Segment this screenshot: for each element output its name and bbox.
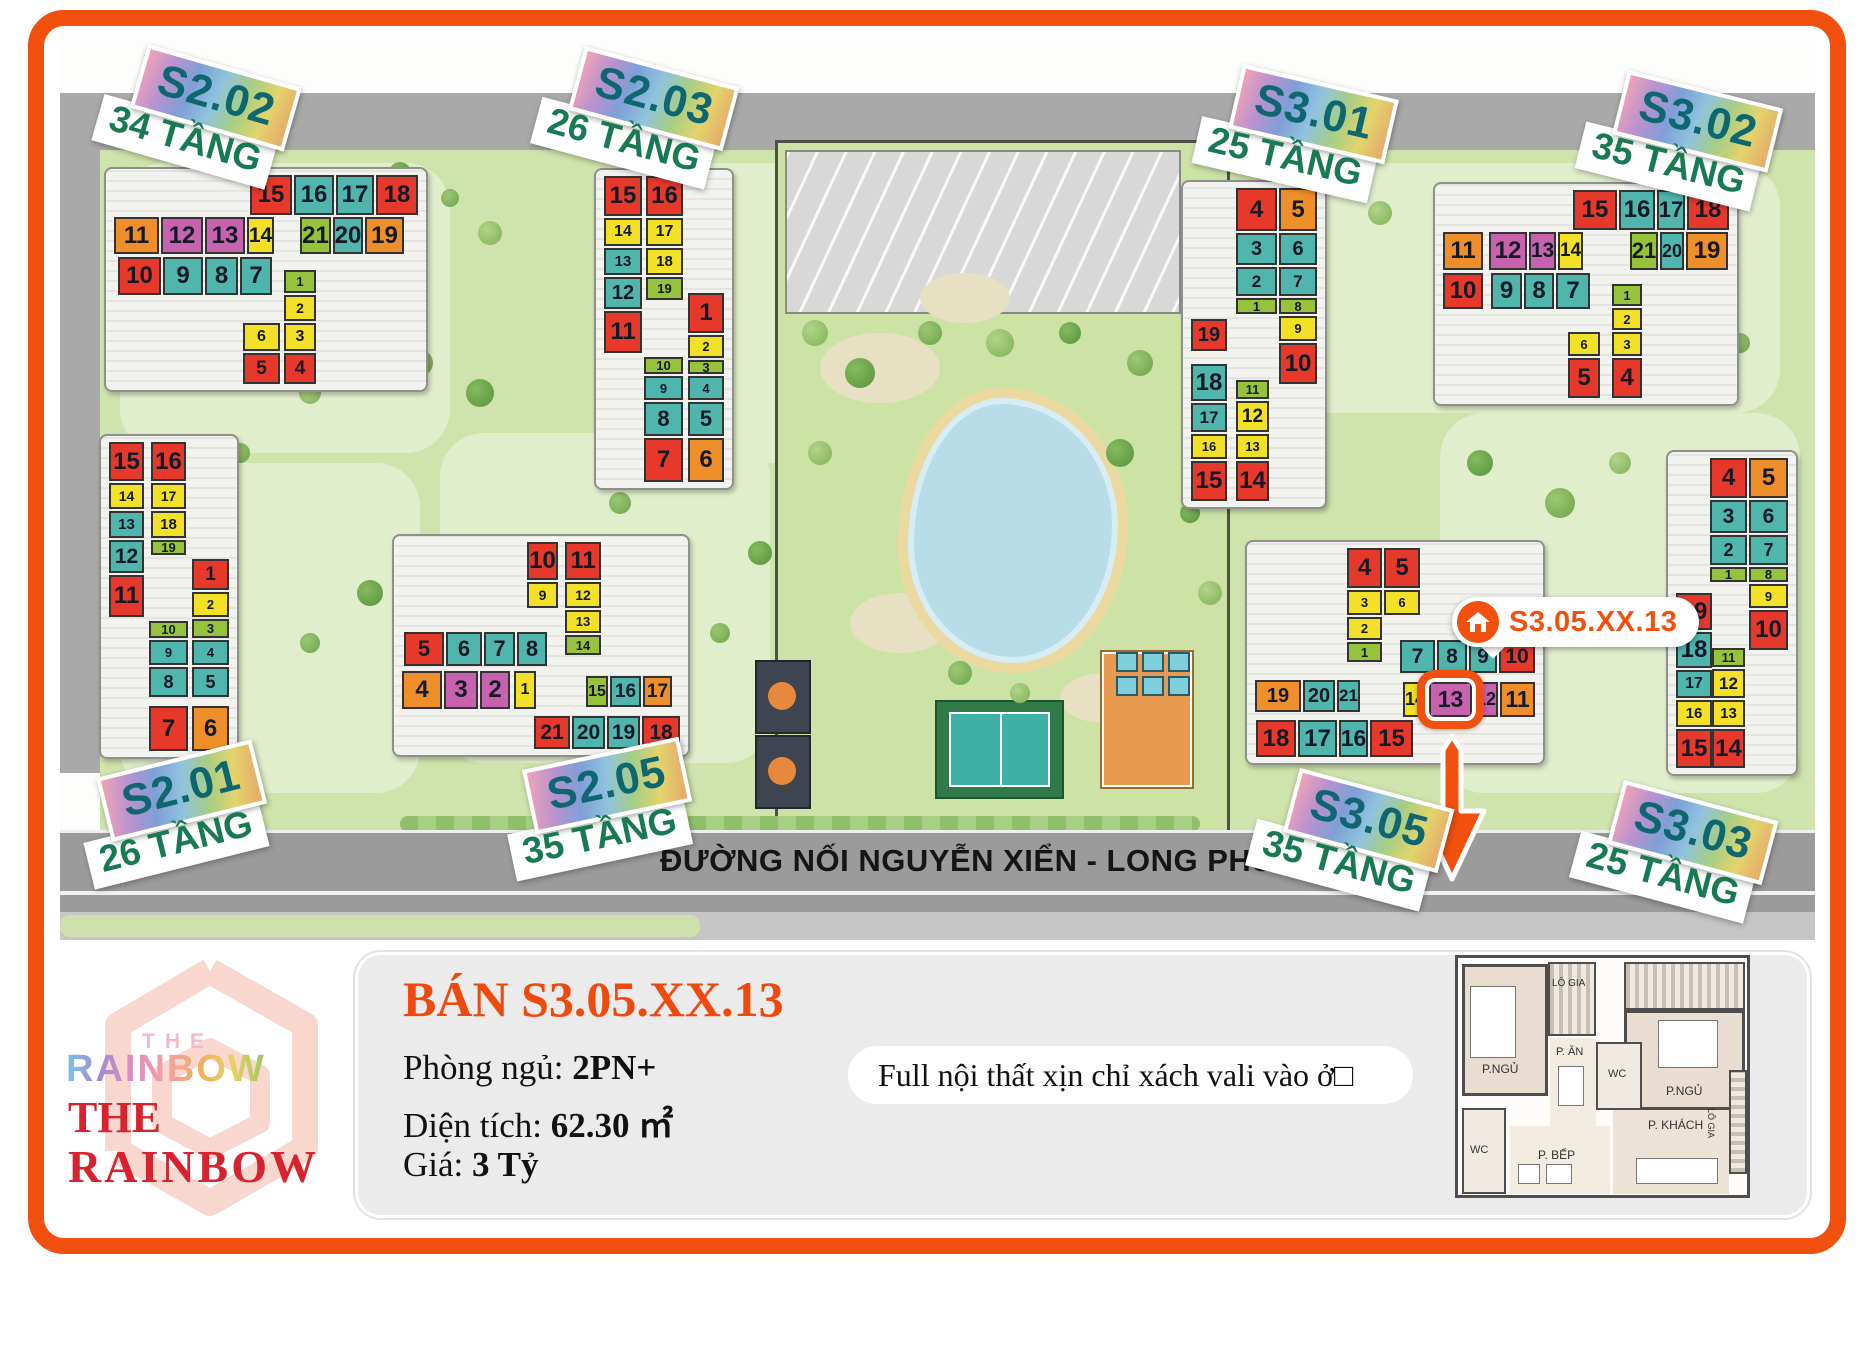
decoration xyxy=(949,712,1050,787)
unit-S2.02-10[interactable]: 10 xyxy=(118,257,161,295)
logo-rainbow-serif-text: RAINBOW xyxy=(68,1140,319,1193)
unit-S2.01-11[interactable]: 11 xyxy=(109,575,144,617)
decoration xyxy=(1168,676,1190,696)
unit-S3.01-1[interactable]: 1 xyxy=(1236,298,1277,314)
unit-S2.03-6[interactable]: 6 xyxy=(688,438,724,482)
field-label: Giá: xyxy=(403,1145,472,1184)
unit-S2.05-9[interactable]: 9 xyxy=(527,582,558,608)
unit-S2.03-12[interactable]: 12 xyxy=(604,277,642,309)
unit-S3.01-15[interactable]: 15 xyxy=(1191,461,1227,501)
unit-S2.02-13[interactable]: 13 xyxy=(205,217,245,254)
room-label: P. ĂN xyxy=(1556,1046,1583,1058)
unit-S3.03-13[interactable]: 13 xyxy=(1712,700,1745,727)
unit-S2.03-10[interactable]: 10 xyxy=(644,357,683,374)
unit-S3.02-21[interactable]: 21 xyxy=(1630,232,1658,270)
unit-S2.03-5[interactable]: 5 xyxy=(688,402,724,436)
unit-S3.03-1[interactable]: 1 xyxy=(1710,567,1747,582)
decoration xyxy=(1467,450,1493,476)
decoration xyxy=(300,633,320,653)
decoration xyxy=(1668,271,1692,295)
unit-S2.02-9[interactable]: 9 xyxy=(163,257,203,295)
decoration xyxy=(1609,452,1631,474)
unit-S3.05-18[interactable]: 18 xyxy=(1256,720,1296,757)
decoration xyxy=(345,318,375,348)
decoration xyxy=(1000,712,1002,787)
field-bedrooms: Phòng ngủ: 2PN+ xyxy=(403,1048,656,1088)
unit-S2.01-12[interactable]: 12 xyxy=(109,540,144,573)
decoration xyxy=(918,321,942,345)
unit-S3.01-12[interactable]: 12 xyxy=(1236,401,1269,432)
field-value: 3 Tỷ xyxy=(472,1145,538,1184)
decoration xyxy=(357,580,383,606)
unit-S3.01-6[interactable]: 6 xyxy=(1279,233,1317,265)
unit-S3.02-20[interactable]: 20 xyxy=(1660,232,1684,270)
unit-S3.01-7[interactable]: 7 xyxy=(1279,267,1317,296)
unit-S3.01-2[interactable]: 2 xyxy=(1236,267,1277,296)
unit-S3.03-6[interactable]: 6 xyxy=(1749,500,1788,533)
unit-S3.01-10[interactable]: 10 xyxy=(1279,343,1317,384)
unit-S3.03-11[interactable]: 11 xyxy=(1712,648,1745,667)
site-plan-map: ĐƯỜNG NỐI NGUYỄN XIỂN - LONG PHƯỚC xyxy=(60,33,1815,940)
decoration xyxy=(1545,488,1575,518)
unit-S3.03-15[interactable]: 15 xyxy=(1676,729,1712,768)
unit-S3.03-9[interactable]: 9 xyxy=(1749,584,1788,608)
unit-S2.05-7[interactable]: 7 xyxy=(484,632,515,666)
unit-S2.02-5[interactable]: 5 xyxy=(243,353,280,384)
unit-S3.05-19[interactable]: 19 xyxy=(1255,680,1301,712)
decoration xyxy=(407,350,433,376)
unit-S3.02-5[interactable]: 5 xyxy=(1568,358,1600,398)
decoration xyxy=(710,623,730,643)
unit-S2.02-15[interactable]: 15 xyxy=(250,175,292,215)
tooltip-unit-code: S3.05.XX.13 xyxy=(1509,606,1677,639)
park-path xyxy=(820,333,940,403)
field-area: Diện tích: 62.30 ㎡ xyxy=(403,1097,673,1148)
listing-title: BÁN S3.05.XX.13 xyxy=(403,970,784,1028)
unit-S2.05-20[interactable]: 20 xyxy=(572,716,605,749)
decoration xyxy=(478,221,502,245)
unit-S2.02-21[interactable]: 21 xyxy=(300,217,331,254)
unit-S2.05-14[interactable]: 14 xyxy=(565,635,601,655)
unit-S3.03-4[interactable]: 4 xyxy=(1710,458,1747,498)
unit-tooltip[interactable]: S3.05.XX.13 xyxy=(1452,597,1699,647)
decoration xyxy=(948,661,972,685)
unit-S3.02-16[interactable]: 16 xyxy=(1619,190,1655,230)
unit-S2.05-15[interactable]: 15 xyxy=(586,676,608,707)
unit-S2.05-8[interactable]: 8 xyxy=(517,632,547,666)
unit-S2.02-11[interactable]: 11 xyxy=(114,217,159,254)
unit-S3.02-3[interactable]: 3 xyxy=(1612,332,1642,356)
unit-S3.05-3[interactable]: 3 xyxy=(1347,590,1382,615)
unit-S2.05-4[interactable]: 4 xyxy=(402,671,442,709)
unit-S2.02-6[interactable]: 6 xyxy=(243,323,280,351)
unit-S2.03-14[interactable]: 14 xyxy=(604,218,642,246)
unit-S2.02-2[interactable]: 2 xyxy=(284,295,316,321)
unit-S3.01-8[interactable]: 8 xyxy=(1279,298,1317,314)
decoration xyxy=(768,757,796,785)
unit-S2.05-3[interactable]: 3 xyxy=(444,671,478,709)
unit-S3.01-16[interactable]: 16 xyxy=(1191,434,1227,459)
unit-S2.05-11[interactable]: 11 xyxy=(565,542,601,580)
unit-S2.05-12[interactable]: 12 xyxy=(565,582,601,608)
unit-S3.03-7[interactable]: 7 xyxy=(1749,535,1788,565)
unit-S3.02-8[interactable]: 8 xyxy=(1524,273,1554,309)
decoration xyxy=(1420,736,1484,879)
note-field[interactable]: Full nội thất xịn chỉ xách vali vào ở□ xyxy=(848,1046,1413,1104)
field-label: Diện tích: xyxy=(403,1106,551,1145)
field-value: 2PN+ xyxy=(572,1048,656,1087)
unit-S2.01-3[interactable]: 3 xyxy=(192,619,229,638)
decoration xyxy=(177,170,203,196)
unit-S3.05-2[interactable]: 2 xyxy=(1347,617,1382,640)
unit-S2.01-19[interactable]: 19 xyxy=(151,540,186,555)
unit-S2.02-1[interactable]: 1 xyxy=(284,270,316,293)
unit-S3.05-16[interactable]: 16 xyxy=(1339,720,1368,757)
unit-S2.02-18[interactable]: 18 xyxy=(376,175,418,215)
unit-S2.02-7[interactable]: 7 xyxy=(240,257,272,295)
park-path xyxy=(920,273,1010,323)
decoration xyxy=(1127,350,1153,376)
room-label: WC xyxy=(1608,1068,1626,1080)
unit-S2.01-7[interactable]: 7 xyxy=(149,706,188,751)
field-value: 62.30 ㎡ xyxy=(551,1106,674,1145)
unit-S3.05-11[interactable]: 11 xyxy=(1500,682,1535,717)
tennis-court xyxy=(935,700,1064,799)
unit-S3.03-16[interactable]: 16 xyxy=(1676,700,1712,727)
unit-S2.03-11[interactable]: 11 xyxy=(604,311,642,353)
sofa xyxy=(1636,1158,1718,1184)
decoration xyxy=(986,329,1014,357)
room-label: P.NGỦ xyxy=(1482,1062,1518,1076)
decoration xyxy=(1142,676,1164,696)
unit-S2.01-18[interactable]: 18 xyxy=(151,511,186,538)
logo-rainbow-gradient-text: RAINBOW xyxy=(66,1048,266,1091)
room-label: WC xyxy=(1470,1144,1488,1156)
unit-S2.01-15[interactable]: 15 xyxy=(109,442,144,481)
decoration xyxy=(748,541,772,565)
decoration xyxy=(441,189,459,207)
unit-S3.01-11[interactable]: 11 xyxy=(1236,380,1269,399)
unit-S3.02-19[interactable]: 19 xyxy=(1686,232,1728,270)
unit-S3.01-18[interactable]: 18 xyxy=(1191,364,1227,401)
field-label: Phòng ngủ: xyxy=(403,1048,572,1087)
unit-S2.02-20[interactable]: 20 xyxy=(333,217,363,254)
decoration xyxy=(1142,652,1164,672)
unit-S2.03-3[interactable]: 3 xyxy=(688,360,724,374)
unit-S2.03-13[interactable]: 13 xyxy=(604,248,642,275)
unit-S2.02-4[interactable]: 4 xyxy=(284,353,316,384)
unit-S2.02-16[interactable]: 16 xyxy=(294,175,334,215)
unit-S2.05-1[interactable]: 1 xyxy=(514,671,536,709)
unit-S2.05-6[interactable]: 6 xyxy=(446,632,482,666)
unit-S2.01-17[interactable]: 17 xyxy=(151,483,186,509)
unit-S3.01-9[interactable]: 9 xyxy=(1279,316,1317,341)
decoration xyxy=(1010,683,1030,703)
unit-S3.02-15[interactable]: 15 xyxy=(1573,190,1617,230)
unit-S2.03-16[interactable]: 16 xyxy=(646,176,683,216)
unit-S2.03-7[interactable]: 7 xyxy=(644,438,683,482)
unit-S2.03-18[interactable]: 18 xyxy=(646,248,683,275)
unit-S3.02-1[interactable]: 1 xyxy=(1612,284,1642,306)
unit-S3.02-2[interactable]: 2 xyxy=(1612,308,1642,330)
unit-S2.02-17[interactable]: 17 xyxy=(336,175,374,215)
road-name-label: ĐƯỜNG NỐI NGUYỄN XIỂN - LONG PHƯỚC xyxy=(660,843,1327,879)
unit-S3.02-10[interactable]: 10 xyxy=(1443,273,1483,309)
unit-S3.05-15[interactable]: 15 xyxy=(1370,720,1413,757)
decoration xyxy=(1198,581,1222,605)
unit-S3.02-6[interactable]: 6 xyxy=(1568,332,1600,356)
bed xyxy=(1470,986,1516,1058)
decoration xyxy=(1730,333,1750,353)
unit-S3.01-17[interactable]: 17 xyxy=(1191,403,1227,432)
unit-S3.03-10[interactable]: 10 xyxy=(1749,610,1788,650)
decoration xyxy=(230,193,250,213)
unit-S3.05-5[interactable]: 5 xyxy=(1384,548,1420,588)
decoration xyxy=(768,682,796,710)
decoration xyxy=(1368,201,1392,225)
sink xyxy=(1546,1164,1572,1184)
unit-S3.03-12[interactable]: 12 xyxy=(1712,669,1745,698)
road-marking xyxy=(60,830,1815,833)
logo-the-serif-text: THE xyxy=(68,1092,161,1143)
unit-S3.05-7[interactable]: 7 xyxy=(1400,640,1435,673)
unit-S2.01-10[interactable]: 10 xyxy=(149,621,188,638)
unit-S2.03-1[interactable]: 1 xyxy=(688,293,724,333)
selection-arrow-icon xyxy=(1414,733,1490,883)
decoration xyxy=(609,492,631,514)
unit-S2.03-9[interactable]: 9 xyxy=(644,376,683,400)
unit-S3.03-3[interactable]: 3 xyxy=(1710,500,1747,533)
unit-S2.05-5[interactable]: 5 xyxy=(404,632,444,666)
room-label: LÔ GIA xyxy=(1706,1108,1716,1138)
unit-S2.05-19[interactable]: 19 xyxy=(607,716,640,749)
unit-S2.05-13[interactable]: 13 xyxy=(565,610,601,633)
unit-S3.03-14[interactable]: 14 xyxy=(1712,729,1745,768)
unit-S2.03-17[interactable]: 17 xyxy=(646,218,683,246)
unit-S2.01-8[interactable]: 8 xyxy=(149,667,188,697)
unit-S2.05-21[interactable]: 21 xyxy=(534,716,570,749)
unit-S3.01-3[interactable]: 3 xyxy=(1236,233,1277,265)
unit-S2.05-16[interactable]: 16 xyxy=(610,676,641,707)
unit-S2.01-5[interactable]: 5 xyxy=(192,667,229,697)
floorplan-image: P.NGỦ LÔ GIA P.NGỦ WC P. ĂN P. KHÁCH LÔ … xyxy=(1455,955,1750,1198)
unit-S3.05-20[interactable]: 20 xyxy=(1303,680,1335,712)
unit-S3.02-13[interactable]: 13 xyxy=(1529,232,1556,270)
unit-S2.01-16[interactable]: 16 xyxy=(151,442,186,481)
unit-S2.05-18[interactable]: 18 xyxy=(642,716,680,749)
unit-S2.05-17[interactable]: 17 xyxy=(643,676,672,707)
unit-S2.01-13[interactable]: 13 xyxy=(109,511,144,538)
unit-S3.01-5[interactable]: 5 xyxy=(1279,188,1317,231)
unit-S3.05-1[interactable]: 1 xyxy=(1347,642,1382,662)
unit-S2.01-2[interactable]: 2 xyxy=(192,592,229,617)
decoration xyxy=(1168,652,1190,672)
roadside-green xyxy=(60,915,700,937)
decoration xyxy=(845,358,875,388)
unit-S3.03-17[interactable]: 17 xyxy=(1676,670,1712,698)
room-label: P. KHÁCH xyxy=(1648,1118,1703,1132)
unit-S3.05-4[interactable]: 4 xyxy=(1347,548,1382,588)
unit-S2.03-2[interactable]: 2 xyxy=(688,335,724,358)
room-label: P. BẾP xyxy=(1538,1148,1575,1162)
unit-S2.01-4[interactable]: 4 xyxy=(192,640,229,665)
unit-S3.01-14[interactable]: 14 xyxy=(1236,461,1269,501)
room-label: LÔ GIA xyxy=(1552,978,1585,989)
unit-S3.05-21[interactable]: 21 xyxy=(1337,680,1360,712)
unit-S2.03-19[interactable]: 19 xyxy=(646,277,683,300)
unit-S2.02-3[interactable]: 3 xyxy=(284,323,316,351)
unit-S3.05-17[interactable]: 17 xyxy=(1298,720,1337,757)
unit-S2.01-1[interactable]: 1 xyxy=(192,559,229,590)
unit-S2.05-2[interactable]: 2 xyxy=(480,671,510,709)
unit-S3.05-6[interactable]: 6 xyxy=(1384,590,1420,615)
decoration xyxy=(808,441,832,465)
decoration xyxy=(802,320,828,346)
basketball-court xyxy=(755,660,811,734)
unit-S2.02-19[interactable]: 19 xyxy=(365,217,404,254)
unit-S3.02-17[interactable]: 17 xyxy=(1657,190,1685,230)
balcony-strip xyxy=(1624,962,1745,1010)
unit-S3.02-9[interactable]: 9 xyxy=(1491,273,1522,309)
unit-S3.01-19[interactable]: 19 xyxy=(1191,319,1227,351)
unit-S2.01-9[interactable]: 9 xyxy=(149,640,188,665)
unit-S3.03-8[interactable]: 8 xyxy=(1749,567,1788,582)
logo-block: THE RAINBOW THE RAINBOW xyxy=(60,948,360,1248)
room-label: P.NGỦ xyxy=(1666,1084,1702,1098)
unit-S2.02-8[interactable]: 8 xyxy=(205,257,238,295)
decoration xyxy=(299,382,321,404)
decoration xyxy=(139,322,161,344)
decoration xyxy=(466,379,494,407)
unit-S2.01-14[interactable]: 14 xyxy=(109,483,144,509)
decoration xyxy=(1116,676,1138,696)
unit-S3.03-5[interactable]: 5 xyxy=(1749,458,1788,498)
bed xyxy=(1658,1020,1718,1068)
unit-S2.02-14[interactable]: 14 xyxy=(247,217,274,254)
basketball-court xyxy=(755,735,811,809)
swimming-pool xyxy=(898,388,1128,673)
decoration xyxy=(1499,192,1521,214)
unit-S3.02-14[interactable]: 14 xyxy=(1558,232,1583,270)
decoration xyxy=(1116,652,1138,672)
decoration xyxy=(230,443,250,463)
unit-S2.02-12[interactable]: 12 xyxy=(161,217,203,254)
unit-S2.03-4[interactable]: 4 xyxy=(688,376,724,400)
decoration xyxy=(689,182,711,204)
unit-S3.02-18[interactable]: 18 xyxy=(1687,190,1729,230)
balcony-top xyxy=(1548,962,1596,1036)
dining-table xyxy=(1558,1066,1584,1106)
unit-S3.01-4[interactable]: 4 xyxy=(1236,188,1277,231)
selected-unit-ring xyxy=(1417,670,1484,729)
decoration xyxy=(1180,503,1200,523)
unit-S3.02-4[interactable]: 4 xyxy=(1612,358,1642,398)
stove xyxy=(1518,1164,1540,1184)
unit-S2.05-10[interactable]: 10 xyxy=(527,542,558,580)
unit-S3.02-11[interactable]: 11 xyxy=(1443,232,1483,270)
unit-S3.02-7[interactable]: 7 xyxy=(1556,273,1590,309)
home-icon xyxy=(1457,601,1499,643)
decoration xyxy=(1106,439,1134,467)
unit-S3.03-2[interactable]: 2 xyxy=(1710,535,1747,565)
page: ĐƯỜNG NỐI NGUYỄN XIỂN - LONG PHƯỚC 15161… xyxy=(0,0,1864,1366)
road-marking xyxy=(60,891,1815,895)
unit-S3.05-8[interactable]: 8 xyxy=(1437,640,1467,673)
unit-S2.03-8[interactable]: 8 xyxy=(644,402,683,436)
lawn-patch xyxy=(440,433,770,763)
map-left-road xyxy=(60,93,105,773)
unit-S3.01-13[interactable]: 13 xyxy=(1236,434,1269,459)
field-price: Giá: 3 Tỷ xyxy=(403,1145,538,1185)
decoration xyxy=(1465,610,1491,634)
decoration xyxy=(1059,322,1081,344)
decoration xyxy=(1475,624,1481,632)
unit-S2.03-15[interactable]: 15 xyxy=(604,176,642,216)
unit-S3.02-12[interactable]: 12 xyxy=(1489,232,1527,270)
balcony-right xyxy=(1729,1070,1747,1174)
unit-S2.01-6[interactable]: 6 xyxy=(192,706,229,751)
listing-card: BÁN S3.05.XX.13 Phòng ngủ: 2PN+ Diện tíc… xyxy=(355,952,1810,1218)
